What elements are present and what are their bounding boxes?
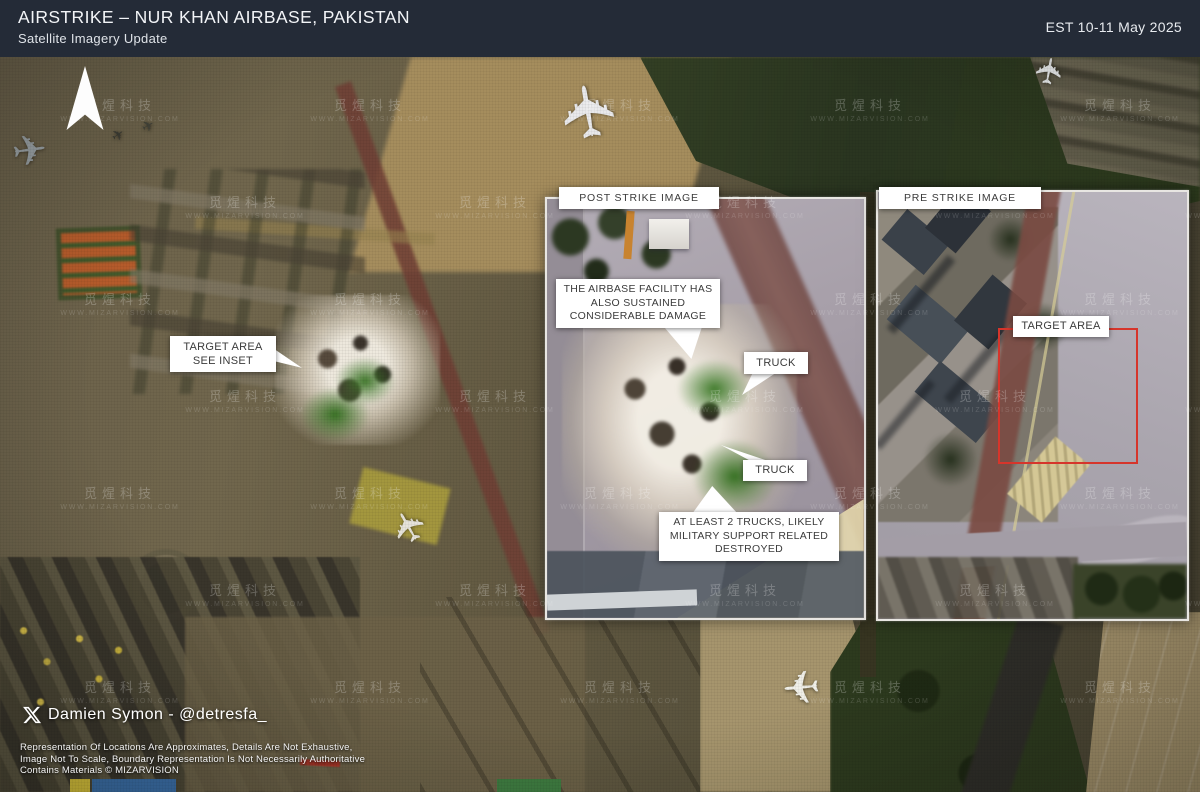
date-estimate: EST 10-11 May 2025 <box>1046 19 1182 35</box>
page-title: AIRSTRIKE – NUR KHAN AIRBASE, PAKISTAN <box>18 7 410 28</box>
target-area-outline <box>998 328 1138 464</box>
page-subtitle: Satellite Imagery Update <box>18 31 168 46</box>
pre-strike-panel-title: PRE STRIKE IMAGE <box>879 187 1041 209</box>
buildings-bottom <box>878 557 1078 619</box>
post-strike-panel-title: POST STRIKE IMAGE <box>559 187 719 209</box>
target-area-label: TARGET AREA <box>1013 316 1109 337</box>
header-bar: AIRSTRIKE – NUR KHAN AIRBASE, PAKISTAN S… <box>0 0 1200 57</box>
x-social-icon <box>22 705 42 725</box>
truck-callout-1: TRUCK <box>744 352 808 374</box>
damage-note-callout: THE AIRBASE FACILITY HAS ALSO SUSTAINED … <box>556 279 720 328</box>
trees-bottom-right <box>1073 564 1187 619</box>
white-building <box>649 219 689 249</box>
author-credit: Damien Symon - @detresfa_ <box>48 706 267 724</box>
disclaimer-text: Representation Of Locations Are Approxim… <box>20 742 365 777</box>
target-area-callout: TARGET AREA SEE INSET <box>170 336 276 372</box>
infographic: ✈ ✈ ✈ ✈ ✈ ✈ ✈ <box>0 0 1200 792</box>
truck-callout-2: TRUCK <box>743 460 807 481</box>
tree <box>923 432 978 487</box>
pre-strike-panel <box>876 190 1189 621</box>
trucks-destroyed-callout: AT LEAST 2 TRUCKS, LIKELY MILITARY SUPPO… <box>659 512 839 561</box>
trees-at-site <box>677 359 752 419</box>
